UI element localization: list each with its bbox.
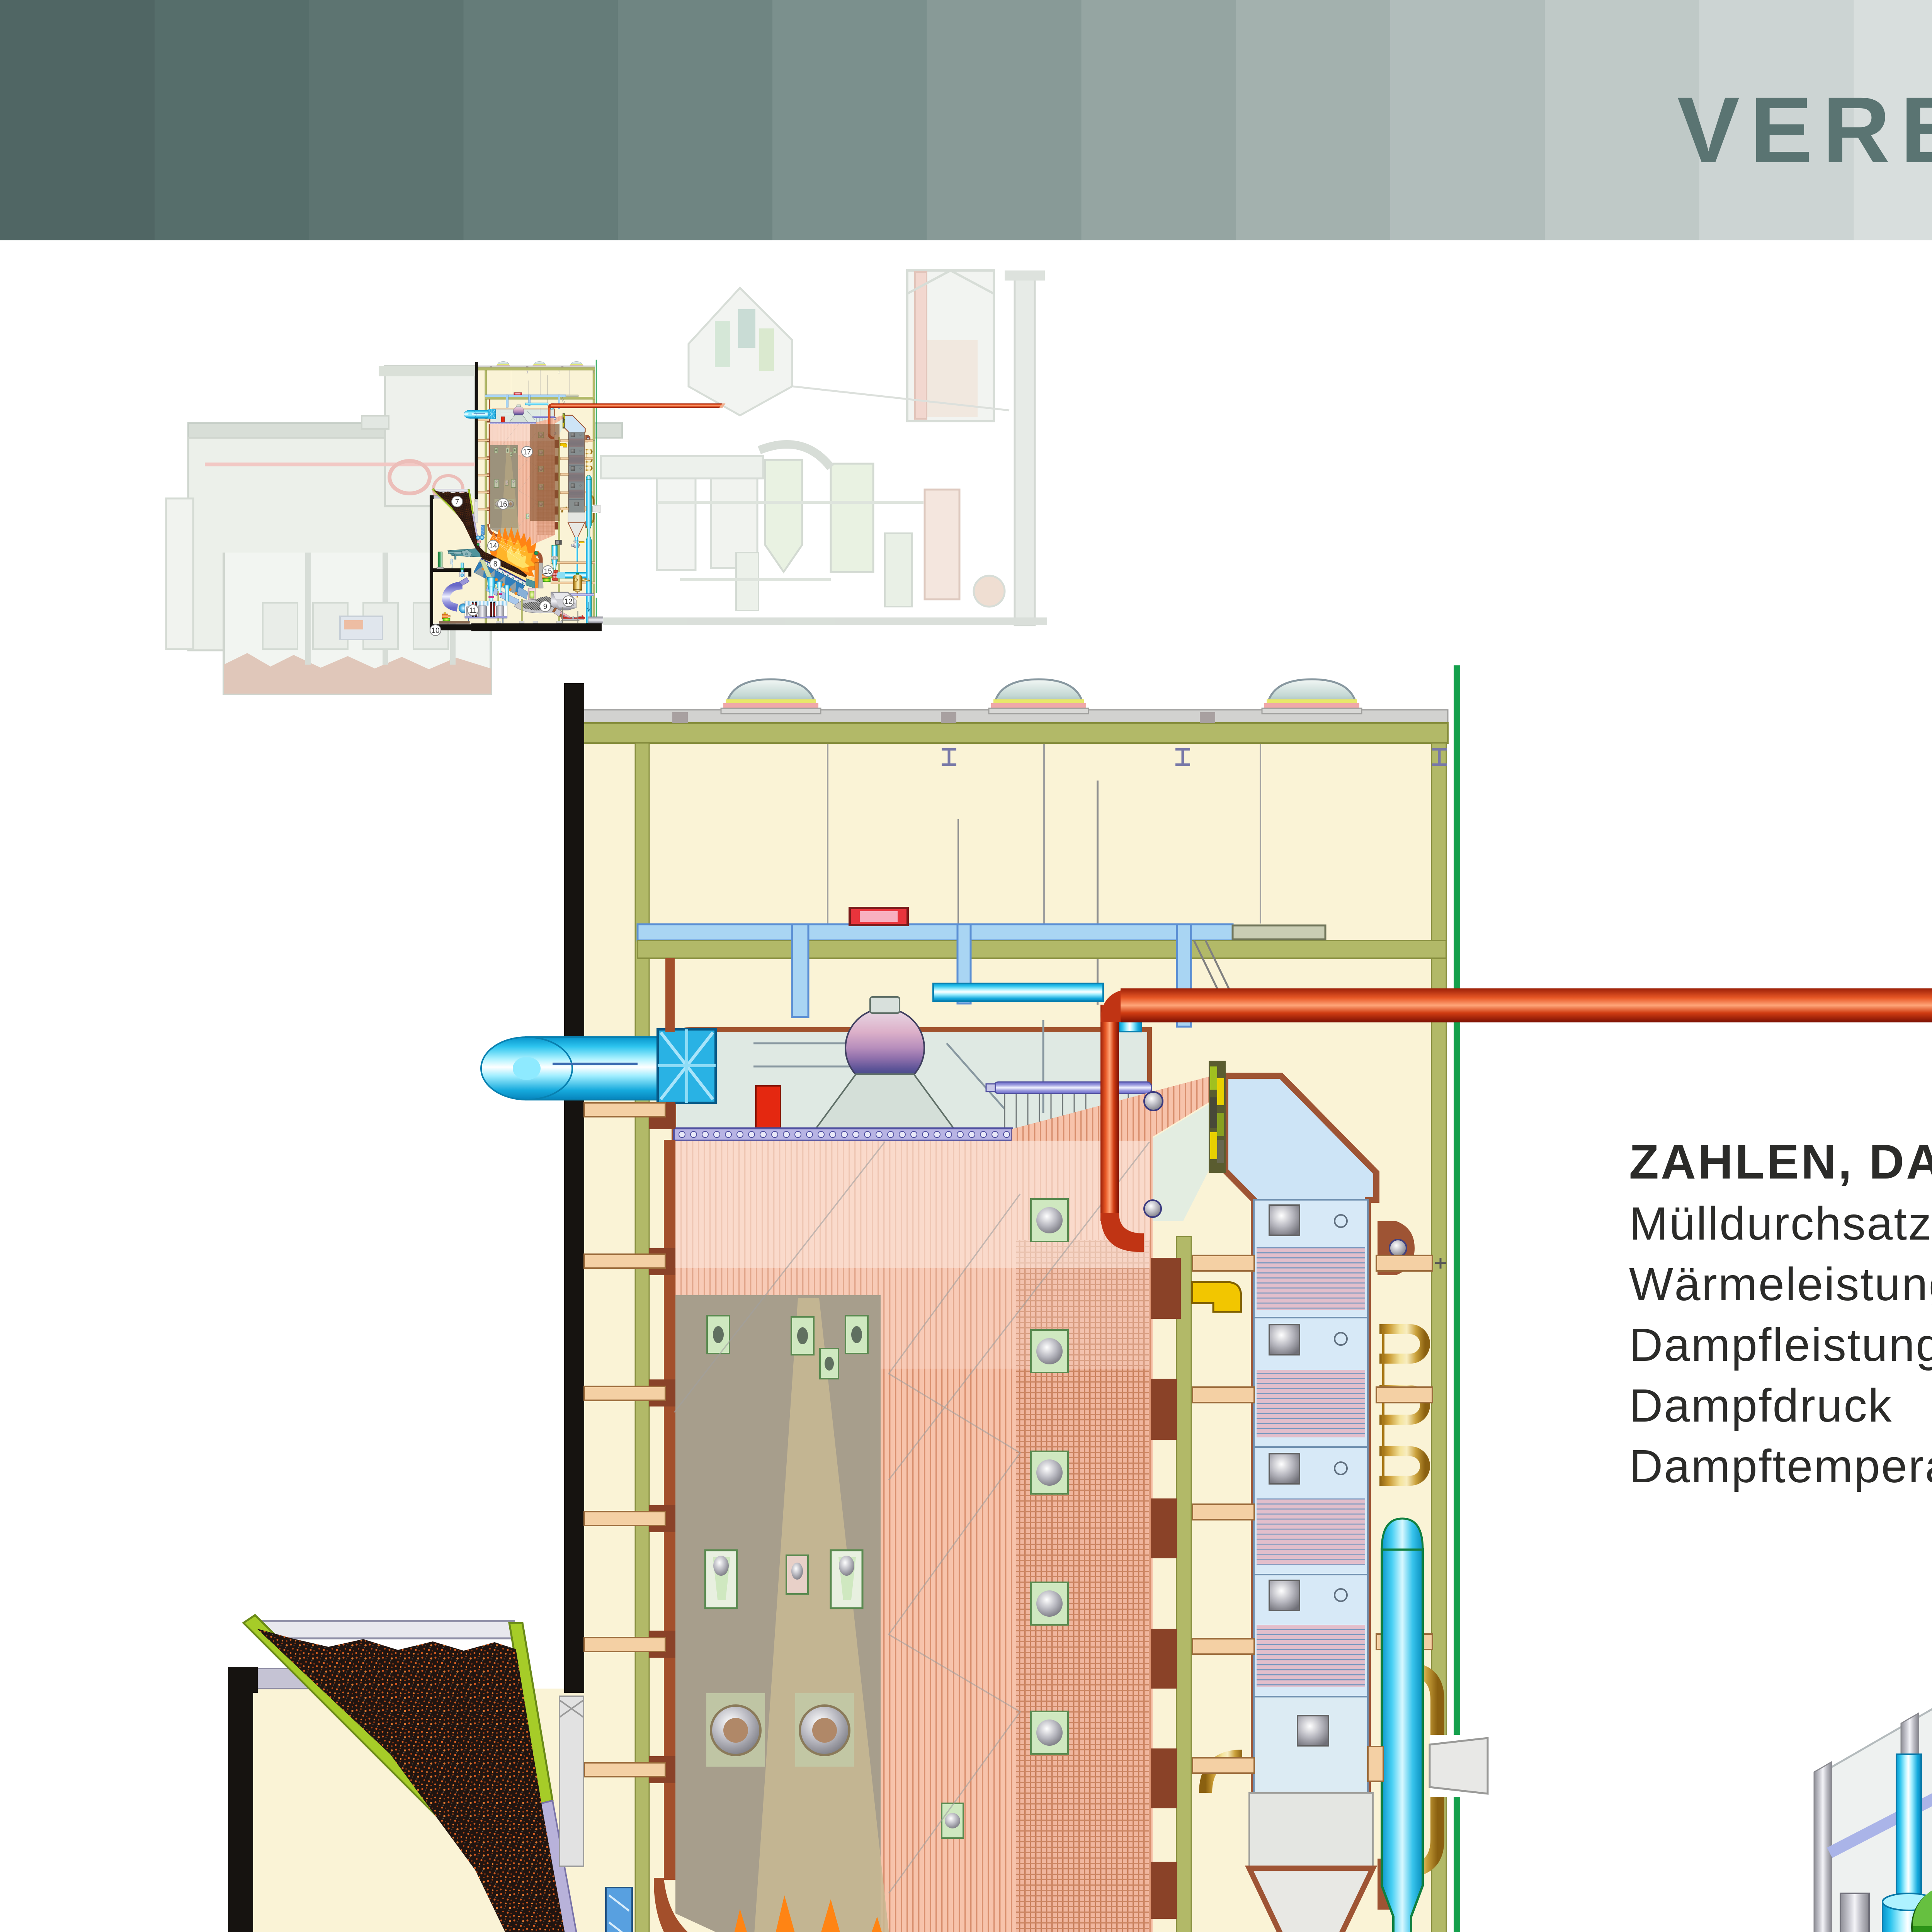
svg-text:Dampfdruck: Dampfdruck xyxy=(1629,1379,1893,1432)
svg-text:VERBRENNUNG: VERBRENNUNG xyxy=(1677,78,1932,182)
svg-text:16: 16 xyxy=(499,500,507,509)
svg-text:11: 11 xyxy=(469,607,477,615)
svg-text:7: 7 xyxy=(455,498,459,506)
svg-text:15: 15 xyxy=(544,568,552,576)
svg-text:14: 14 xyxy=(489,542,497,550)
svg-text:12: 12 xyxy=(564,598,572,606)
svg-text:9: 9 xyxy=(543,603,548,611)
svg-text:ZAHLEN, DATEN:: ZAHLEN, DATEN: xyxy=(1629,1134,1932,1189)
svg-text:Mülldurchsatz: Mülldurchsatz xyxy=(1629,1197,1932,1250)
svg-text:8: 8 xyxy=(493,560,498,568)
svg-text:Wärmeleistung: Wärmeleistung xyxy=(1629,1258,1932,1310)
svg-text:17: 17 xyxy=(523,448,531,456)
svg-text:Dampftemperatur: Dampftemperatur xyxy=(1629,1440,1932,1492)
svg-text:Dampfleistung: Dampfleistung xyxy=(1629,1318,1932,1371)
svg-text:10: 10 xyxy=(431,627,439,635)
